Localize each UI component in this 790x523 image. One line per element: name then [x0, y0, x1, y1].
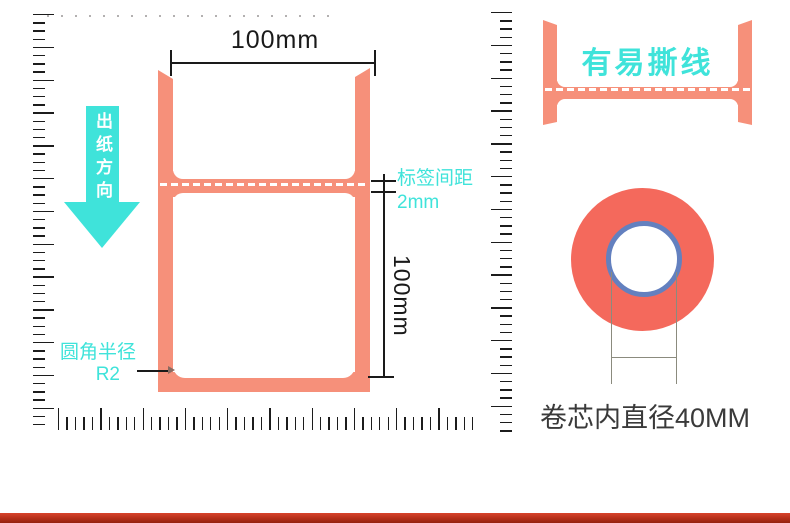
ruler-tick [33, 326, 45, 327]
ruler-tick [33, 153, 45, 154]
ruler-tick [261, 417, 262, 430]
ruler-tick [33, 416, 45, 417]
ruler-tick [500, 381, 512, 382]
ruler-tick [33, 301, 45, 302]
ruler-tick [33, 276, 54, 277]
ruler-tick [202, 417, 203, 430]
ruler-tick [66, 417, 67, 430]
ruler-tick [33, 293, 45, 294]
ruler-tick [500, 217, 512, 218]
ruler-tick [491, 143, 512, 144]
ruler-tick [500, 291, 512, 292]
ruler-tick [33, 367, 45, 368]
ruler-tick [500, 266, 512, 267]
ruler-tick [33, 14, 54, 15]
ruler-tick [500, 53, 512, 54]
ruler-tick [33, 309, 54, 310]
ruler-tick [33, 96, 45, 97]
ruler-tick [33, 80, 54, 81]
ruler-tick [33, 145, 54, 146]
ruler-bottom [58, 408, 482, 430]
ruler-tick [33, 170, 45, 171]
ruler-tick [33, 71, 45, 72]
ruler-tick [500, 102, 512, 103]
ruler-tick [33, 162, 45, 163]
core-callout-line-left [611, 272, 612, 384]
ruler-tick [33, 252, 45, 253]
ruler-tick [33, 137, 45, 138]
ruler-tick [33, 112, 54, 113]
ruler-tick [33, 375, 54, 376]
ruler-tick [491, 242, 512, 243]
ruler-tick [269, 408, 270, 430]
ruler-tick [500, 201, 512, 202]
corner-radius-line1: 圆角半径 [52, 342, 136, 364]
corner-radius-line2: R2 [52, 364, 136, 386]
ruler-tick [58, 408, 59, 430]
ruler-tick [143, 408, 144, 430]
ruler-tick [134, 417, 135, 430]
ruler-tick [92, 417, 93, 430]
ruler-tick [33, 129, 45, 130]
ruler-tick [500, 135, 512, 136]
label-right-edge [355, 68, 370, 392]
ruler-tick [500, 192, 512, 193]
ruler-tick [33, 391, 45, 392]
tear-sticker-lower [557, 99, 738, 125]
ruler-tick [33, 22, 45, 23]
ruler-tick [33, 194, 45, 195]
ruler-tick [168, 417, 169, 430]
ruler-tick [500, 20, 512, 21]
corner-pointer-arrowhead-icon [168, 366, 175, 374]
ruler-tick [33, 63, 45, 64]
ruler-tick [500, 356, 512, 357]
height-dimension-label: 100mm [388, 255, 415, 351]
ruler-tick [500, 422, 512, 423]
ruler-tick [33, 227, 45, 228]
ruler-tick [33, 30, 45, 31]
gap-annotation-line2: 2mm [397, 191, 473, 215]
ruler-tick [33, 260, 45, 261]
ruler-tick [500, 365, 512, 366]
roll-core-caption: 卷芯内直径40MM [516, 396, 774, 435]
ruler-tick [500, 315, 512, 316]
tear-line-caption: 有易撕线 [543, 38, 752, 82]
width-dimension-tick-left [170, 50, 172, 76]
ruler-tick [491, 110, 512, 111]
ruler-tick [33, 317, 45, 318]
ruler-tick [345, 417, 346, 430]
ruler-tick [33, 219, 45, 220]
ruler-tick [491, 373, 512, 374]
width-dimension-tick-right [374, 50, 376, 76]
ruler-tick [500, 414, 512, 415]
ruler-tick [33, 235, 45, 236]
ruler-tick [252, 417, 253, 430]
ruler-tick [491, 340, 512, 341]
ruler-tick [33, 47, 54, 48]
ruler-tick [303, 417, 304, 430]
ruler-tick [500, 28, 512, 29]
ruler-tick [472, 417, 473, 430]
width-dimension-line [170, 62, 376, 64]
ruler-tick [210, 417, 211, 430]
ruler-tick [33, 334, 45, 335]
ruler-tick [33, 408, 54, 409]
corner-radius-annotation: 圆角半径 R2 [52, 342, 136, 386]
core-callout-line-right [676, 272, 677, 384]
perforation-dashed-line [160, 183, 368, 186]
ruler-tick [500, 397, 512, 398]
ruler-tick [491, 45, 512, 46]
ruler-tick [491, 12, 512, 13]
ruler-tick [500, 250, 512, 251]
ruler-tick [438, 408, 439, 430]
ruler-tick [295, 417, 296, 430]
ruler-tick [500, 61, 512, 62]
ruler-tick [362, 417, 363, 430]
ruler-tick [75, 417, 76, 430]
ruler-tick [491, 307, 512, 308]
ruler-tick [100, 408, 101, 430]
ruler-tick [109, 417, 110, 430]
ruler-tick [491, 274, 512, 275]
ruler-tick [33, 244, 54, 245]
ruler-tick [396, 408, 397, 430]
ruler-tick [83, 417, 84, 430]
ruler-tick [151, 417, 152, 430]
ruler-tick [33, 203, 45, 204]
ruler-tick [491, 78, 512, 79]
ruler-tick [278, 417, 279, 430]
ruler-tick [447, 417, 448, 430]
tear-dashed-line [545, 88, 750, 91]
ruler-tick [379, 417, 380, 430]
ruler-tick [33, 268, 45, 269]
ruler-tick [328, 417, 329, 430]
ruler-tick [33, 121, 45, 122]
ruler-right [488, 12, 512, 436]
ruler-tick [33, 104, 45, 105]
product-diagram-canvas: 100mm 出纸方向 标签间距 2mm 100mm 圆角半径 R2 有易撕线 卷… [0, 0, 790, 523]
ruler-tick [33, 342, 54, 343]
ruler-tick [337, 417, 338, 430]
ruler-tick [491, 176, 512, 177]
ruler-tick [500, 127, 512, 128]
gap-tick-bottom [371, 191, 396, 193]
ruler-tick [500, 184, 512, 185]
top-dotted-line [47, 15, 332, 17]
ruler-tick [185, 408, 186, 430]
ruler-tick [500, 430, 512, 431]
ruler-tick [33, 88, 45, 89]
ruler-tick [500, 151, 512, 152]
label-left-edge [158, 70, 173, 392]
ruler-tick [371, 417, 372, 430]
ruler-tick [159, 417, 160, 430]
ruler-tick [500, 86, 512, 87]
ruler-tick [33, 350, 45, 351]
roll-core-icon [606, 221, 682, 297]
ruler-tick [33, 383, 45, 384]
ruler-tick [500, 299, 512, 300]
ruler-tick [117, 417, 118, 430]
ruler-tick [500, 69, 512, 70]
ruler-tick [33, 424, 45, 425]
ruler-tick [244, 417, 245, 430]
ruler-tick [33, 358, 45, 359]
gap-annotation-line1: 标签间距 [397, 167, 473, 191]
ruler-tick [500, 94, 512, 95]
ruler-tick [500, 168, 512, 169]
ruler-tick [33, 186, 45, 187]
ruler-tick [500, 160, 512, 161]
corner-pointer-line [137, 370, 169, 372]
ruler-tick [33, 211, 54, 212]
ruler-tick [388, 417, 389, 430]
ruler-tick [176, 417, 177, 430]
ruler-tick [500, 233, 512, 234]
ruler-tick [500, 332, 512, 333]
bottom-accent-bar [0, 513, 790, 523]
ruler-tick [500, 225, 512, 226]
label-diagram [158, 64, 370, 392]
ruler-tick [500, 37, 512, 38]
ruler-tick [491, 209, 512, 210]
gap-annotation: 标签间距 2mm [397, 167, 473, 215]
ruler-tick [227, 408, 228, 430]
ruler-tick [500, 324, 512, 325]
ruler-tick [500, 283, 512, 284]
ruler-tick [500, 348, 512, 349]
ruler-tick [413, 417, 414, 430]
ruler-tick [193, 417, 194, 430]
ruler-tick [421, 417, 422, 430]
ruler-tick [33, 39, 45, 40]
label-sticker-upper [173, 64, 355, 179]
height-dimension-line [383, 174, 385, 378]
ruler-tick [33, 178, 54, 179]
ruler-tick [500, 258, 512, 259]
ruler-tick [33, 55, 45, 56]
ruler-tick [455, 417, 456, 430]
height-dimension-tick-bottom [368, 376, 394, 378]
ruler-tick [33, 285, 45, 286]
core-callout-line-cross [611, 357, 677, 358]
gap-tick-top [371, 180, 396, 182]
ruler-tick [126, 417, 127, 430]
ruler-tick [219, 417, 220, 430]
label-sticker-lower [173, 193, 355, 378]
ruler-tick [312, 408, 313, 430]
width-dimension-label: 100mm [200, 26, 350, 55]
ruler-tick [464, 417, 465, 430]
ruler-tick [500, 119, 512, 120]
ruler-tick [491, 406, 512, 407]
ruler-tick [320, 417, 321, 430]
paper-direction-label: 出纸方向 [86, 112, 119, 238]
ruler-tick [33, 399, 45, 400]
ruler-tick [354, 408, 355, 430]
ruler-tick [286, 417, 287, 430]
ruler-tick [500, 389, 512, 390]
ruler-tick [430, 417, 431, 430]
ruler-tick [404, 417, 405, 430]
ruler-tick [235, 417, 236, 430]
